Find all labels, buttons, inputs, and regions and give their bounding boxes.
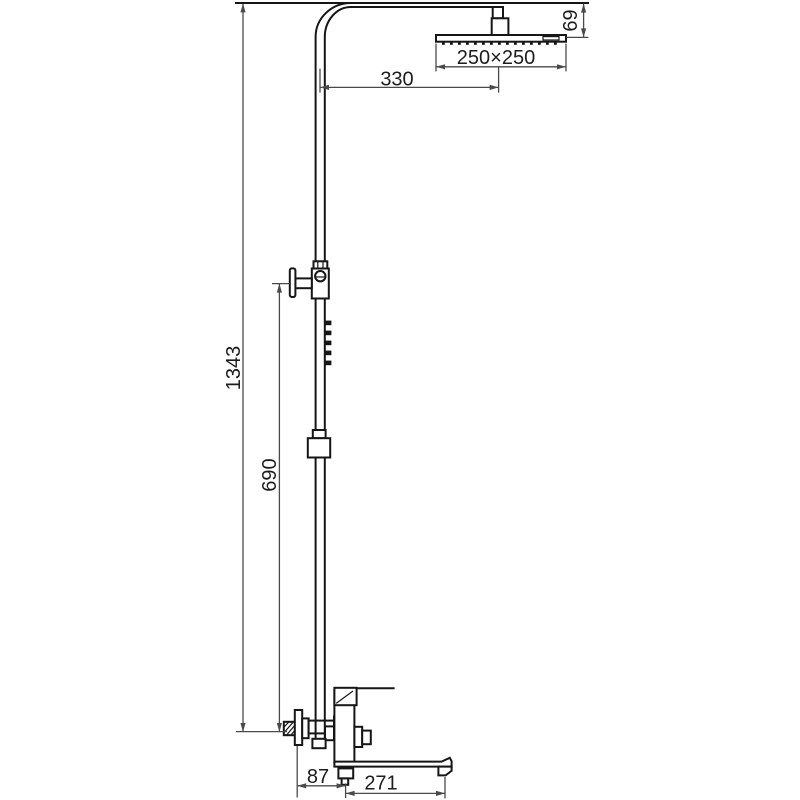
dim-label-250x250: 250×250 xyxy=(457,47,535,69)
rib-tick xyxy=(325,361,331,366)
nozzle xyxy=(490,42,493,45)
dim-label-1343: 1343 xyxy=(223,346,245,391)
dim-label-87: 87 xyxy=(307,766,329,788)
riser-end-cap xyxy=(312,739,325,748)
nozzle xyxy=(442,42,445,45)
head-stem xyxy=(493,7,503,18)
hose-outlet-cap xyxy=(362,731,371,745)
nozzle xyxy=(506,42,509,45)
hose-outlet-boss xyxy=(354,727,362,747)
background xyxy=(0,0,800,800)
nozzle xyxy=(538,42,541,45)
nozzle xyxy=(458,42,461,45)
nozzle xyxy=(514,42,517,45)
nozzle xyxy=(466,42,469,45)
technical-drawing-canvas: 1343 690 330 250×250 69 87 xyxy=(0,0,800,800)
lower-outlet-tip xyxy=(342,778,349,784)
rib-tick xyxy=(325,331,331,336)
handle-knob-disc xyxy=(290,268,296,297)
bracket-screw xyxy=(315,271,325,281)
nozzle xyxy=(482,42,485,45)
nozzle xyxy=(546,42,549,45)
slider-collar xyxy=(313,430,326,438)
nozzle xyxy=(450,42,453,45)
spray-nozzles xyxy=(442,42,557,45)
head-ball-joint xyxy=(492,18,509,35)
nozzle xyxy=(474,42,477,45)
lower-outlet xyxy=(338,768,353,778)
rib-tick xyxy=(325,341,331,346)
slider-block xyxy=(308,438,330,457)
nozzle xyxy=(554,42,557,45)
dim-label-271: 271 xyxy=(364,773,397,795)
nozzle xyxy=(498,42,501,45)
threaded-nipple xyxy=(284,722,295,735)
handle-stem xyxy=(295,278,312,288)
rib-tick xyxy=(325,321,331,326)
technical-drawing-page: 1343 690 330 250×250 69 87 xyxy=(0,0,800,800)
bracket-collar-nut xyxy=(314,261,328,268)
dim-label-330: 330 xyxy=(380,69,413,91)
escutcheon-flange xyxy=(295,710,302,745)
nozzle xyxy=(530,42,533,45)
dim-label-690: 690 xyxy=(259,458,281,491)
rib-tick xyxy=(325,351,331,356)
dim-label-69: 69 xyxy=(560,9,582,31)
nozzle xyxy=(522,42,525,45)
